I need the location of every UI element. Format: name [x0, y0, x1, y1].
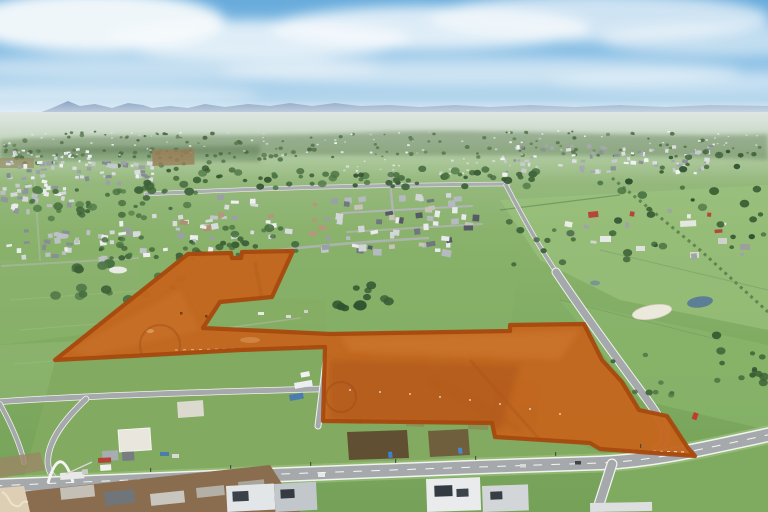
distant-building-speck [746, 134, 748, 136]
house-roof [427, 216, 434, 222]
distant-building-speck [357, 166, 359, 167]
tree [120, 136, 123, 138]
house-roof [72, 167, 76, 170]
tree [339, 135, 343, 138]
distant-building-speck [451, 160, 454, 162]
tree [33, 205, 42, 212]
house-roof [17, 248, 22, 253]
house-roof [150, 166, 154, 169]
tree [97, 261, 108, 270]
distant-building-speck [306, 152, 308, 153]
tree [128, 253, 133, 257]
tree [556, 141, 560, 144]
tree [203, 136, 208, 140]
tree [140, 201, 146, 206]
house-roof [15, 154, 17, 156]
tree [278, 226, 284, 231]
house-roof [177, 233, 184, 239]
tree [380, 295, 389, 302]
tree [162, 189, 168, 194]
tree [85, 209, 90, 213]
tree [234, 169, 242, 176]
distant-building-speck [370, 134, 372, 136]
tree [354, 300, 367, 310]
tree [278, 157, 284, 161]
house-roof [22, 150, 26, 152]
distant-building-speck [668, 131, 670, 133]
distant-building-speck [262, 137, 263, 138]
house-roof [274, 482, 317, 512]
house-roof [425, 207, 433, 213]
house-roof [88, 155, 92, 158]
house-roof [336, 220, 342, 225]
house-roof [313, 203, 317, 206]
house-roof [595, 169, 599, 173]
distant-building-speck [695, 149, 697, 150]
tree [181, 184, 185, 188]
house-roof [87, 157, 91, 159]
tree [286, 182, 292, 187]
house-roof [558, 164, 563, 166]
house-roof [631, 152, 634, 154]
house-roof [86, 230, 90, 235]
distant-building-speck [18, 133, 19, 134]
house-roof [152, 214, 157, 219]
distant-building-speck [384, 159, 386, 160]
tree [381, 156, 383, 158]
house-roof [414, 228, 421, 235]
distant-building-speck [343, 170, 345, 172]
tree [309, 173, 314, 177]
house-roof [521, 146, 524, 149]
tree [183, 202, 191, 209]
house-roof [652, 161, 657, 164]
distant-building-speck [341, 151, 344, 153]
tree [220, 241, 226, 246]
distant-building-speck [351, 134, 353, 136]
car [318, 473, 325, 477]
house-roof [15, 184, 20, 188]
tree [719, 361, 725, 366]
tree [646, 207, 652, 212]
distant-building-speck [698, 140, 701, 142]
tree [487, 147, 492, 151]
distant-building-speck [131, 132, 133, 134]
house-roof [644, 158, 649, 162]
tree [312, 148, 317, 152]
tree [704, 165, 710, 169]
distant-building-speck [27, 152, 30, 154]
tree [270, 234, 276, 239]
house-roof [134, 170, 140, 175]
tree [409, 152, 414, 156]
tree [533, 237, 539, 242]
tree [374, 143, 377, 146]
distant-building-speck [398, 165, 400, 166]
tree [243, 179, 248, 183]
house-roof [24, 229, 29, 232]
house-roof [517, 159, 520, 161]
tree [523, 183, 531, 190]
tree [256, 184, 264, 190]
tree [30, 199, 36, 203]
tree [48, 216, 55, 222]
house-roof [64, 247, 68, 252]
house-roof [570, 145, 573, 147]
house-roof [665, 149, 669, 153]
distant-building-speck [370, 152, 373, 154]
tree [205, 154, 209, 157]
distant-building-speck [281, 154, 284, 156]
tree [101, 285, 112, 293]
house-roof [346, 236, 350, 240]
house-roof [48, 233, 53, 238]
distant-building-speck [263, 141, 265, 142]
tree [294, 155, 297, 157]
tree [70, 131, 73, 134]
tree [234, 141, 239, 145]
tree [279, 147, 283, 150]
tree [118, 212, 126, 218]
tree [81, 153, 85, 156]
house-roof [318, 225, 326, 230]
distant-building-speck [76, 154, 78, 155]
distant-building-speck [467, 169, 469, 171]
distant-building-speck [509, 165, 511, 166]
aerial-photo-svg [0, 0, 768, 512]
house-roof [621, 151, 625, 155]
distant-building-speck [32, 134, 34, 135]
distant-building-speck [509, 141, 512, 143]
distant-building-speck [728, 136, 729, 137]
tree [154, 255, 159, 259]
tree [528, 171, 537, 178]
tree [329, 175, 337, 182]
tree [684, 146, 687, 148]
house-roof [399, 195, 406, 202]
tree [738, 375, 744, 380]
house-roof [671, 160, 674, 163]
tree [461, 183, 468, 189]
tree [364, 180, 370, 185]
tree [143, 195, 150, 201]
tree [174, 167, 179, 171]
house-roof [231, 201, 239, 204]
tree [717, 221, 725, 227]
tree [506, 219, 513, 225]
tree [759, 379, 768, 386]
tree [237, 236, 243, 241]
house-roof [704, 158, 710, 163]
tree [597, 181, 603, 186]
distant-building-speck [649, 143, 651, 144]
distant-building-speck [706, 139, 708, 141]
tree [759, 354, 766, 359]
house-roof [344, 201, 350, 207]
tree [750, 351, 755, 355]
house-roof [139, 165, 145, 169]
tree [643, 353, 649, 357]
house-roof [13, 203, 18, 207]
distant-building-speck [416, 152, 418, 153]
tree [274, 154, 279, 158]
house-roof [173, 221, 178, 226]
tree [228, 152, 231, 154]
tree [203, 179, 208, 183]
tree [691, 198, 695, 201]
tree [231, 231, 240, 238]
tree [535, 147, 537, 149]
house-roof [44, 239, 51, 244]
house-roof [322, 244, 330, 250]
distant-building-speck [539, 138, 542, 140]
house-roof [376, 219, 382, 224]
house-roof [517, 145, 520, 149]
house-roof [124, 227, 132, 232]
house-roof [47, 204, 52, 207]
tree [401, 183, 410, 190]
house-roof [85, 150, 89, 153]
house-roof [452, 207, 458, 213]
house-roof [67, 202, 72, 207]
tree [740, 200, 750, 208]
tree [559, 259, 566, 265]
tree [375, 153, 377, 155]
distant-building-speck [495, 149, 497, 151]
tree [165, 133, 168, 135]
tree [559, 145, 562, 147]
tree [133, 205, 137, 208]
red-truck [98, 457, 111, 463]
house-roof [649, 149, 653, 153]
tree [476, 152, 479, 154]
distant-building-speck [112, 144, 114, 146]
house-roof [209, 237, 214, 240]
tree [166, 169, 171, 173]
tree [567, 230, 575, 236]
tree [104, 134, 106, 136]
house-roof [68, 155, 71, 158]
tree [120, 189, 126, 194]
tree [105, 193, 110, 197]
tree [40, 155, 43, 158]
house-roof [250, 230, 254, 234]
house-roof [65, 152, 67, 155]
house-roof [423, 223, 428, 230]
tree [674, 155, 677, 158]
tree [698, 204, 707, 211]
tree [415, 182, 420, 186]
tree [658, 380, 664, 384]
distant-building-speck [147, 148, 149, 149]
distant-building-speck [521, 142, 523, 143]
house-roof [415, 212, 423, 218]
tree [387, 172, 394, 177]
tree [144, 135, 147, 137]
house-roof [335, 213, 343, 221]
tree [544, 238, 550, 243]
house-roof [87, 167, 92, 171]
distant-building-speck [166, 142, 168, 143]
tree [99, 248, 103, 251]
tree [133, 155, 137, 158]
tree [184, 188, 194, 196]
distant-building-speck [373, 139, 375, 140]
house-roof [141, 170, 146, 174]
distant-building-speck [150, 149, 152, 151]
house-roof [358, 244, 367, 251]
tree [185, 141, 189, 144]
distant-building-speck [380, 169, 382, 170]
tree [222, 226, 229, 231]
house-roof [112, 172, 116, 175]
tree [463, 176, 468, 180]
house-roof [435, 248, 441, 252]
distant-building-speck [41, 137, 43, 138]
house-roof [533, 155, 537, 157]
tree [700, 139, 705, 143]
tree [282, 140, 285, 142]
car [575, 461, 581, 465]
house-roof [37, 161, 43, 164]
distant-building-speck [266, 143, 269, 145]
house-roof [614, 154, 620, 157]
distant-building-speck [755, 145, 757, 146]
house-roof [451, 218, 459, 225]
distant-building-speck [203, 146, 205, 147]
house-roof [419, 196, 424, 201]
distant-building-speck [476, 162, 478, 164]
tree [307, 147, 312, 151]
aerial-photo-stage [0, 0, 768, 512]
house-roof [441, 236, 450, 241]
house-roof [373, 249, 382, 256]
tree [481, 166, 489, 172]
distant-building-speck [463, 158, 465, 159]
house-roof [590, 502, 652, 512]
house-roof [672, 145, 676, 148]
solar-panels [280, 489, 294, 499]
tree [149, 247, 155, 252]
tree [666, 143, 669, 146]
house-roof [426, 477, 481, 512]
distant-building-speck [243, 150, 246, 152]
tree [668, 392, 674, 397]
distant-building-speck [521, 154, 524, 156]
house-roof [63, 187, 66, 190]
distant-building-speck [119, 154, 121, 155]
tree [138, 235, 144, 239]
car [520, 464, 526, 468]
tree [685, 163, 690, 167]
tree [516, 227, 524, 233]
tree [337, 303, 346, 310]
distant-building-speck [662, 142, 664, 143]
tree [659, 243, 668, 250]
tree [512, 137, 516, 140]
tree [749, 234, 755, 239]
house-roof [41, 168, 47, 171]
tree [647, 211, 656, 218]
tree [732, 147, 735, 149]
tree [669, 147, 671, 149]
tree [390, 184, 395, 188]
tree [386, 151, 389, 153]
house-roof [46, 186, 51, 190]
house-roof [550, 146, 554, 150]
tree [474, 170, 481, 176]
distant-building-speck [31, 154, 33, 156]
tree [257, 157, 261, 160]
house-roof [715, 229, 723, 233]
house-roof [581, 160, 586, 163]
tree [571, 131, 573, 133]
distant-building-speck [53, 139, 55, 140]
distant-building-speck [325, 140, 326, 141]
tree [12, 144, 16, 147]
tree [709, 187, 719, 195]
distant-building-speck [179, 132, 181, 134]
house-roof [691, 253, 698, 260]
tree [680, 186, 685, 190]
tree [465, 145, 470, 149]
house-roof [22, 196, 28, 202]
house-roof [583, 224, 589, 229]
tree [101, 237, 108, 243]
tree [126, 135, 129, 138]
house-roof [590, 171, 595, 174]
tree [128, 211, 135, 216]
distant-building-speck [449, 173, 451, 174]
tree [296, 168, 304, 174]
tree [273, 185, 279, 190]
tree [118, 255, 125, 260]
house-roof [629, 211, 634, 216]
tree [74, 265, 84, 273]
portable-toilet [458, 448, 463, 454]
distant-building-speck [717, 133, 719, 134]
tree [685, 154, 692, 160]
distant-building-speck [112, 132, 114, 133]
tree [715, 152, 723, 159]
house-roof [176, 228, 180, 231]
house-roof [706, 162, 709, 164]
house-roof [358, 226, 365, 233]
distant-building-speck [334, 139, 336, 141]
tree [552, 228, 557, 232]
tree [53, 202, 63, 210]
house-roof [464, 225, 473, 230]
tree [530, 142, 533, 145]
portable-toilet [388, 452, 393, 458]
distant-building-speck [346, 165, 349, 167]
tree [645, 390, 652, 396]
house-roof [140, 248, 147, 253]
house-roof [151, 173, 154, 175]
distant-building-speck [8, 142, 11, 144]
tree [310, 182, 315, 186]
tree [197, 142, 199, 144]
tree [202, 165, 209, 171]
tree [264, 177, 272, 183]
distant-building-speck [263, 133, 265, 134]
distant-building-speck [560, 149, 562, 150]
house-roof [587, 144, 592, 148]
tree [726, 150, 731, 154]
tree [193, 177, 201, 184]
distant-building-speck [724, 145, 725, 146]
house-roof [500, 158, 504, 161]
